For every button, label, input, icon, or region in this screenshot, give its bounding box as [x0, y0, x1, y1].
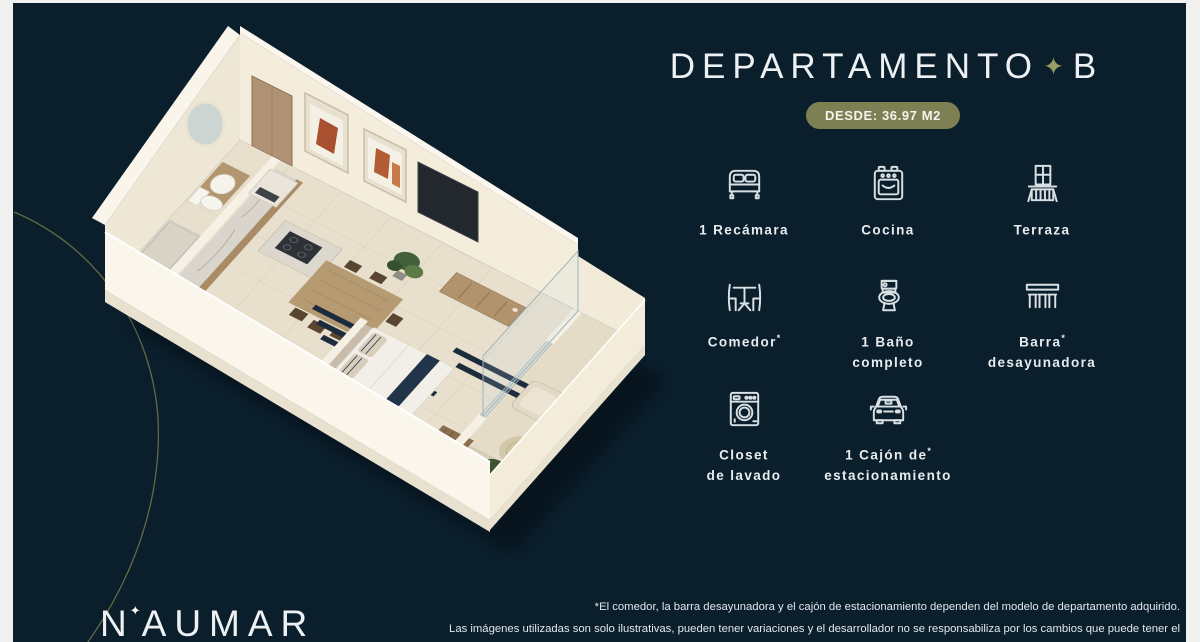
- naumar-logo: N ✦ AUMAR: [100, 603, 315, 642]
- feature-parking: 1 Cajón de*estacionamiento: [798, 383, 978, 486]
- stove-icon: [798, 158, 978, 208]
- unit-letter: B: [1073, 47, 1096, 87]
- disclaimer: *El comedor, la barra desayunadora y el …: [420, 597, 1180, 642]
- page: DEPARTAMENTO ✦ B DESDE: 36.97 M2 1 Recám…: [0, 0, 1200, 642]
- sparkle-icon: ✦: [1043, 52, 1064, 82]
- disclaimer-line-1: *El comedor, la barra desayunadora y el …: [420, 597, 1180, 619]
- breakfast-bar-icon: [952, 270, 1132, 320]
- feature-terrace: Terraza: [952, 158, 1132, 241]
- feature-label: 1 Cajón de*estacionamiento: [798, 441, 978, 486]
- disclaimer-line-2: Las imágenes utilizadas son solo ilustra…: [420, 619, 1180, 642]
- feature-label: Barra*desayunadora: [952, 328, 1132, 373]
- feature-bathroom: 1 Bañocompleto: [798, 270, 978, 373]
- feature-breakfast-bar: Barra*desayunadora: [952, 270, 1132, 373]
- area-badge: DESDE: 36.97 M2: [806, 102, 960, 129]
- toilet-icon: [798, 270, 978, 320]
- page-title: DEPARTAMENTO ✦ B: [670, 47, 1097, 87]
- title-text: DEPARTAMENTO: [670, 47, 1039, 87]
- feature-label: Cocina: [798, 216, 978, 241]
- logo-suffix: AUMAR: [142, 603, 316, 642]
- balcony-icon: [952, 158, 1132, 208]
- feature-kitchen: Cocina: [798, 158, 978, 241]
- header: DEPARTAMENTO ✦ B DESDE: 36.97 M2: [653, 47, 1113, 129]
- feature-label: Terraza: [952, 216, 1132, 241]
- logo-sparkle-icon: ✦: [130, 603, 141, 619]
- feature-label: 1 Bañocompleto: [798, 328, 978, 373]
- slide: DEPARTAMENTO ✦ B DESDE: 36.97 M2 1 Recám…: [13, 3, 1186, 642]
- car-icon: [798, 383, 978, 433]
